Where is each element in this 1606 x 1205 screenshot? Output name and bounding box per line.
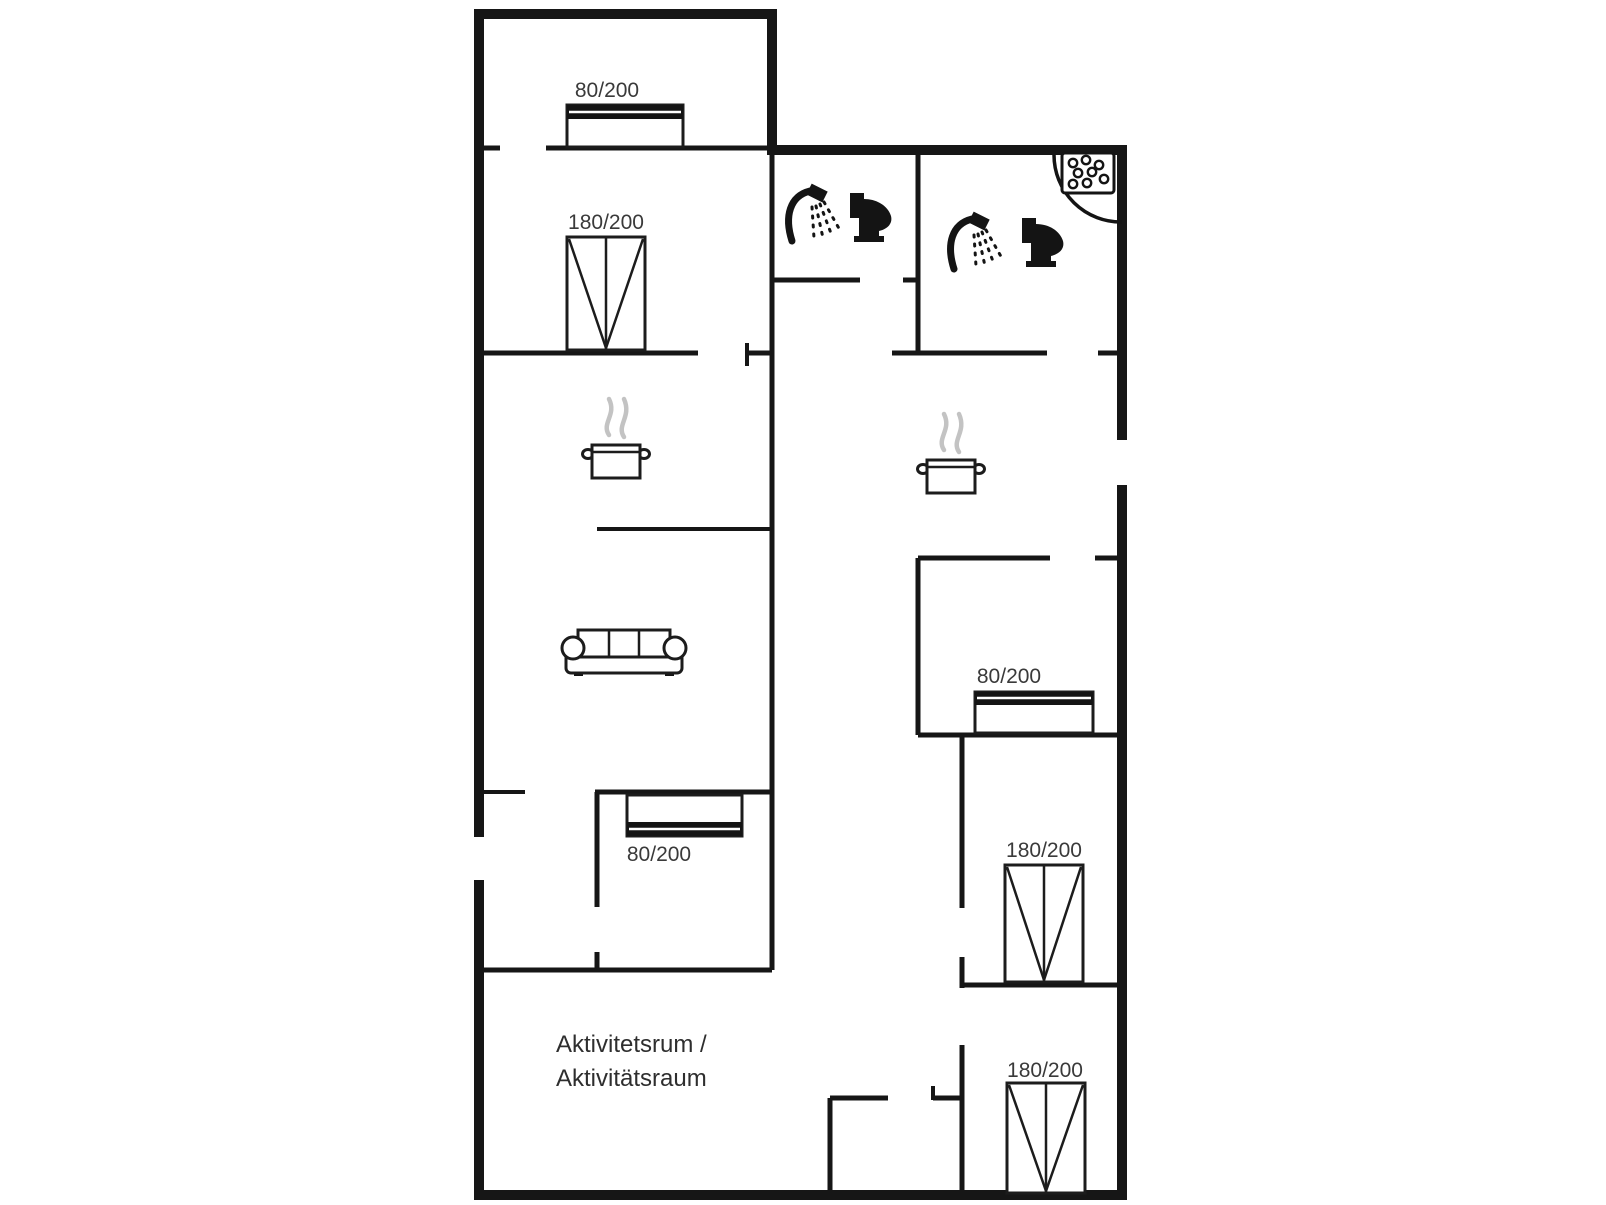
bed-nook-single (627, 795, 742, 836)
shower-icon-2 (951, 217, 1003, 269)
floor-plan-svg: 80/200 180/200 80/200 80/200 180/200 180… (0, 0, 1606, 1205)
outer-walls (474, 9, 1127, 1200)
bed-upper-double (567, 237, 645, 350)
toilet-icon-2 (1022, 218, 1063, 267)
floor-plan: 80/200 180/200 80/200 80/200 180/200 180… (0, 0, 1606, 1205)
cooking-pot-icon-2 (918, 414, 985, 493)
bed-bottom-right-double-label: 180/200 (1007, 1059, 1083, 1082)
bed-bottom-right-double (1007, 1083, 1085, 1193)
bed-right-single-label: 80/200 (977, 665, 1041, 688)
bed-top-single (567, 105, 683, 147)
activity-room-label-line1: Aktivitetsrum / (556, 1031, 707, 1058)
toilet-icon-1 (850, 193, 891, 242)
bed-mid-right-double-label: 180/200 (1006, 839, 1082, 862)
spa-bath-icon (1054, 153, 1122, 222)
bed-nook-single-label: 80/200 (627, 843, 691, 866)
bed-right-single (975, 692, 1093, 733)
activity-room-label: Aktivitetsrum / Aktivitätsraum (556, 1031, 707, 1092)
activity-room-label-line2: Aktivitätsraum (556, 1065, 707, 1092)
bed-upper-double-label: 180/200 (568, 211, 644, 234)
sofa-icon (562, 630, 686, 676)
bed-top-single-label: 80/200 (575, 79, 639, 102)
cooking-pot-icon-1 (583, 399, 650, 478)
bed-mid-right-double (1005, 865, 1083, 982)
shower-icon-1 (789, 189, 841, 241)
